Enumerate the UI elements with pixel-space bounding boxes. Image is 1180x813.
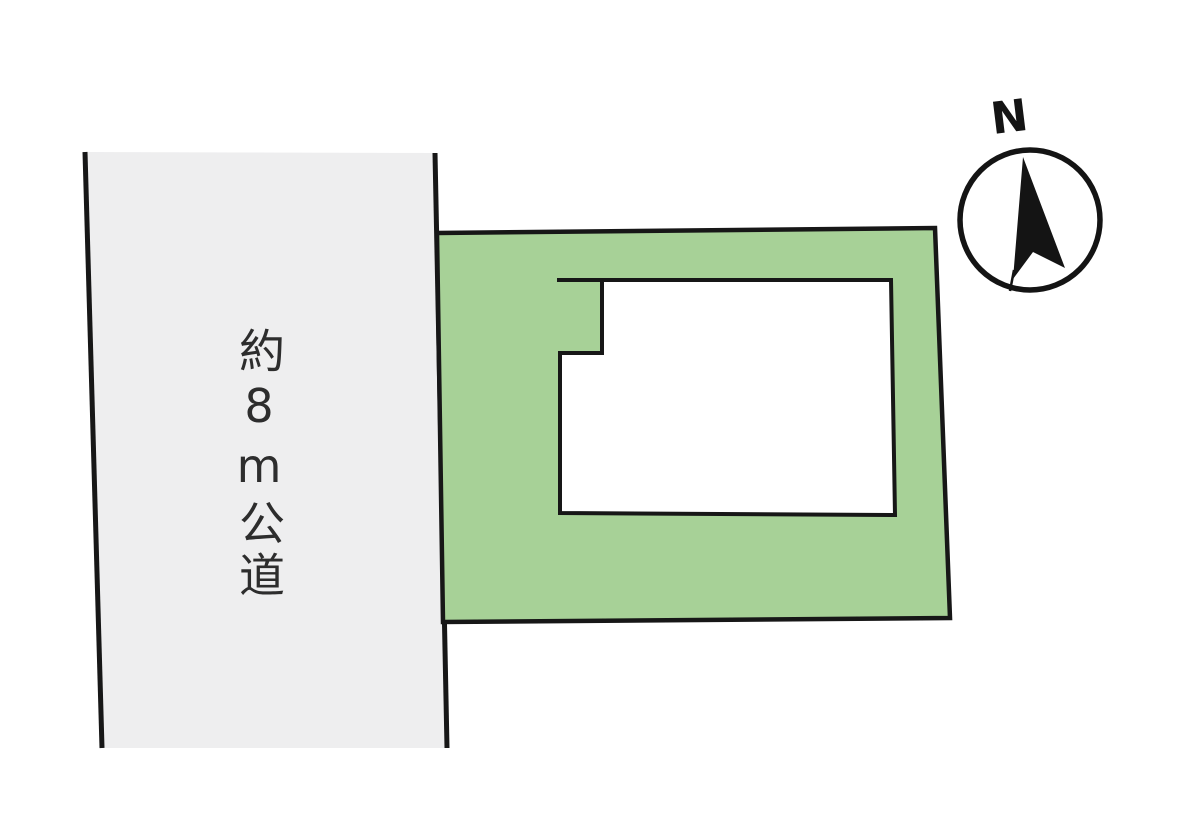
compass-icon	[960, 150, 1100, 291]
site-plan: 約8m公道 N	[0, 0, 1180, 813]
north-arrow-icon	[1013, 157, 1065, 279]
building-footprint	[560, 280, 895, 515]
road-label: 約8m公道	[236, 327, 282, 603]
north-label: N	[988, 90, 1031, 145]
